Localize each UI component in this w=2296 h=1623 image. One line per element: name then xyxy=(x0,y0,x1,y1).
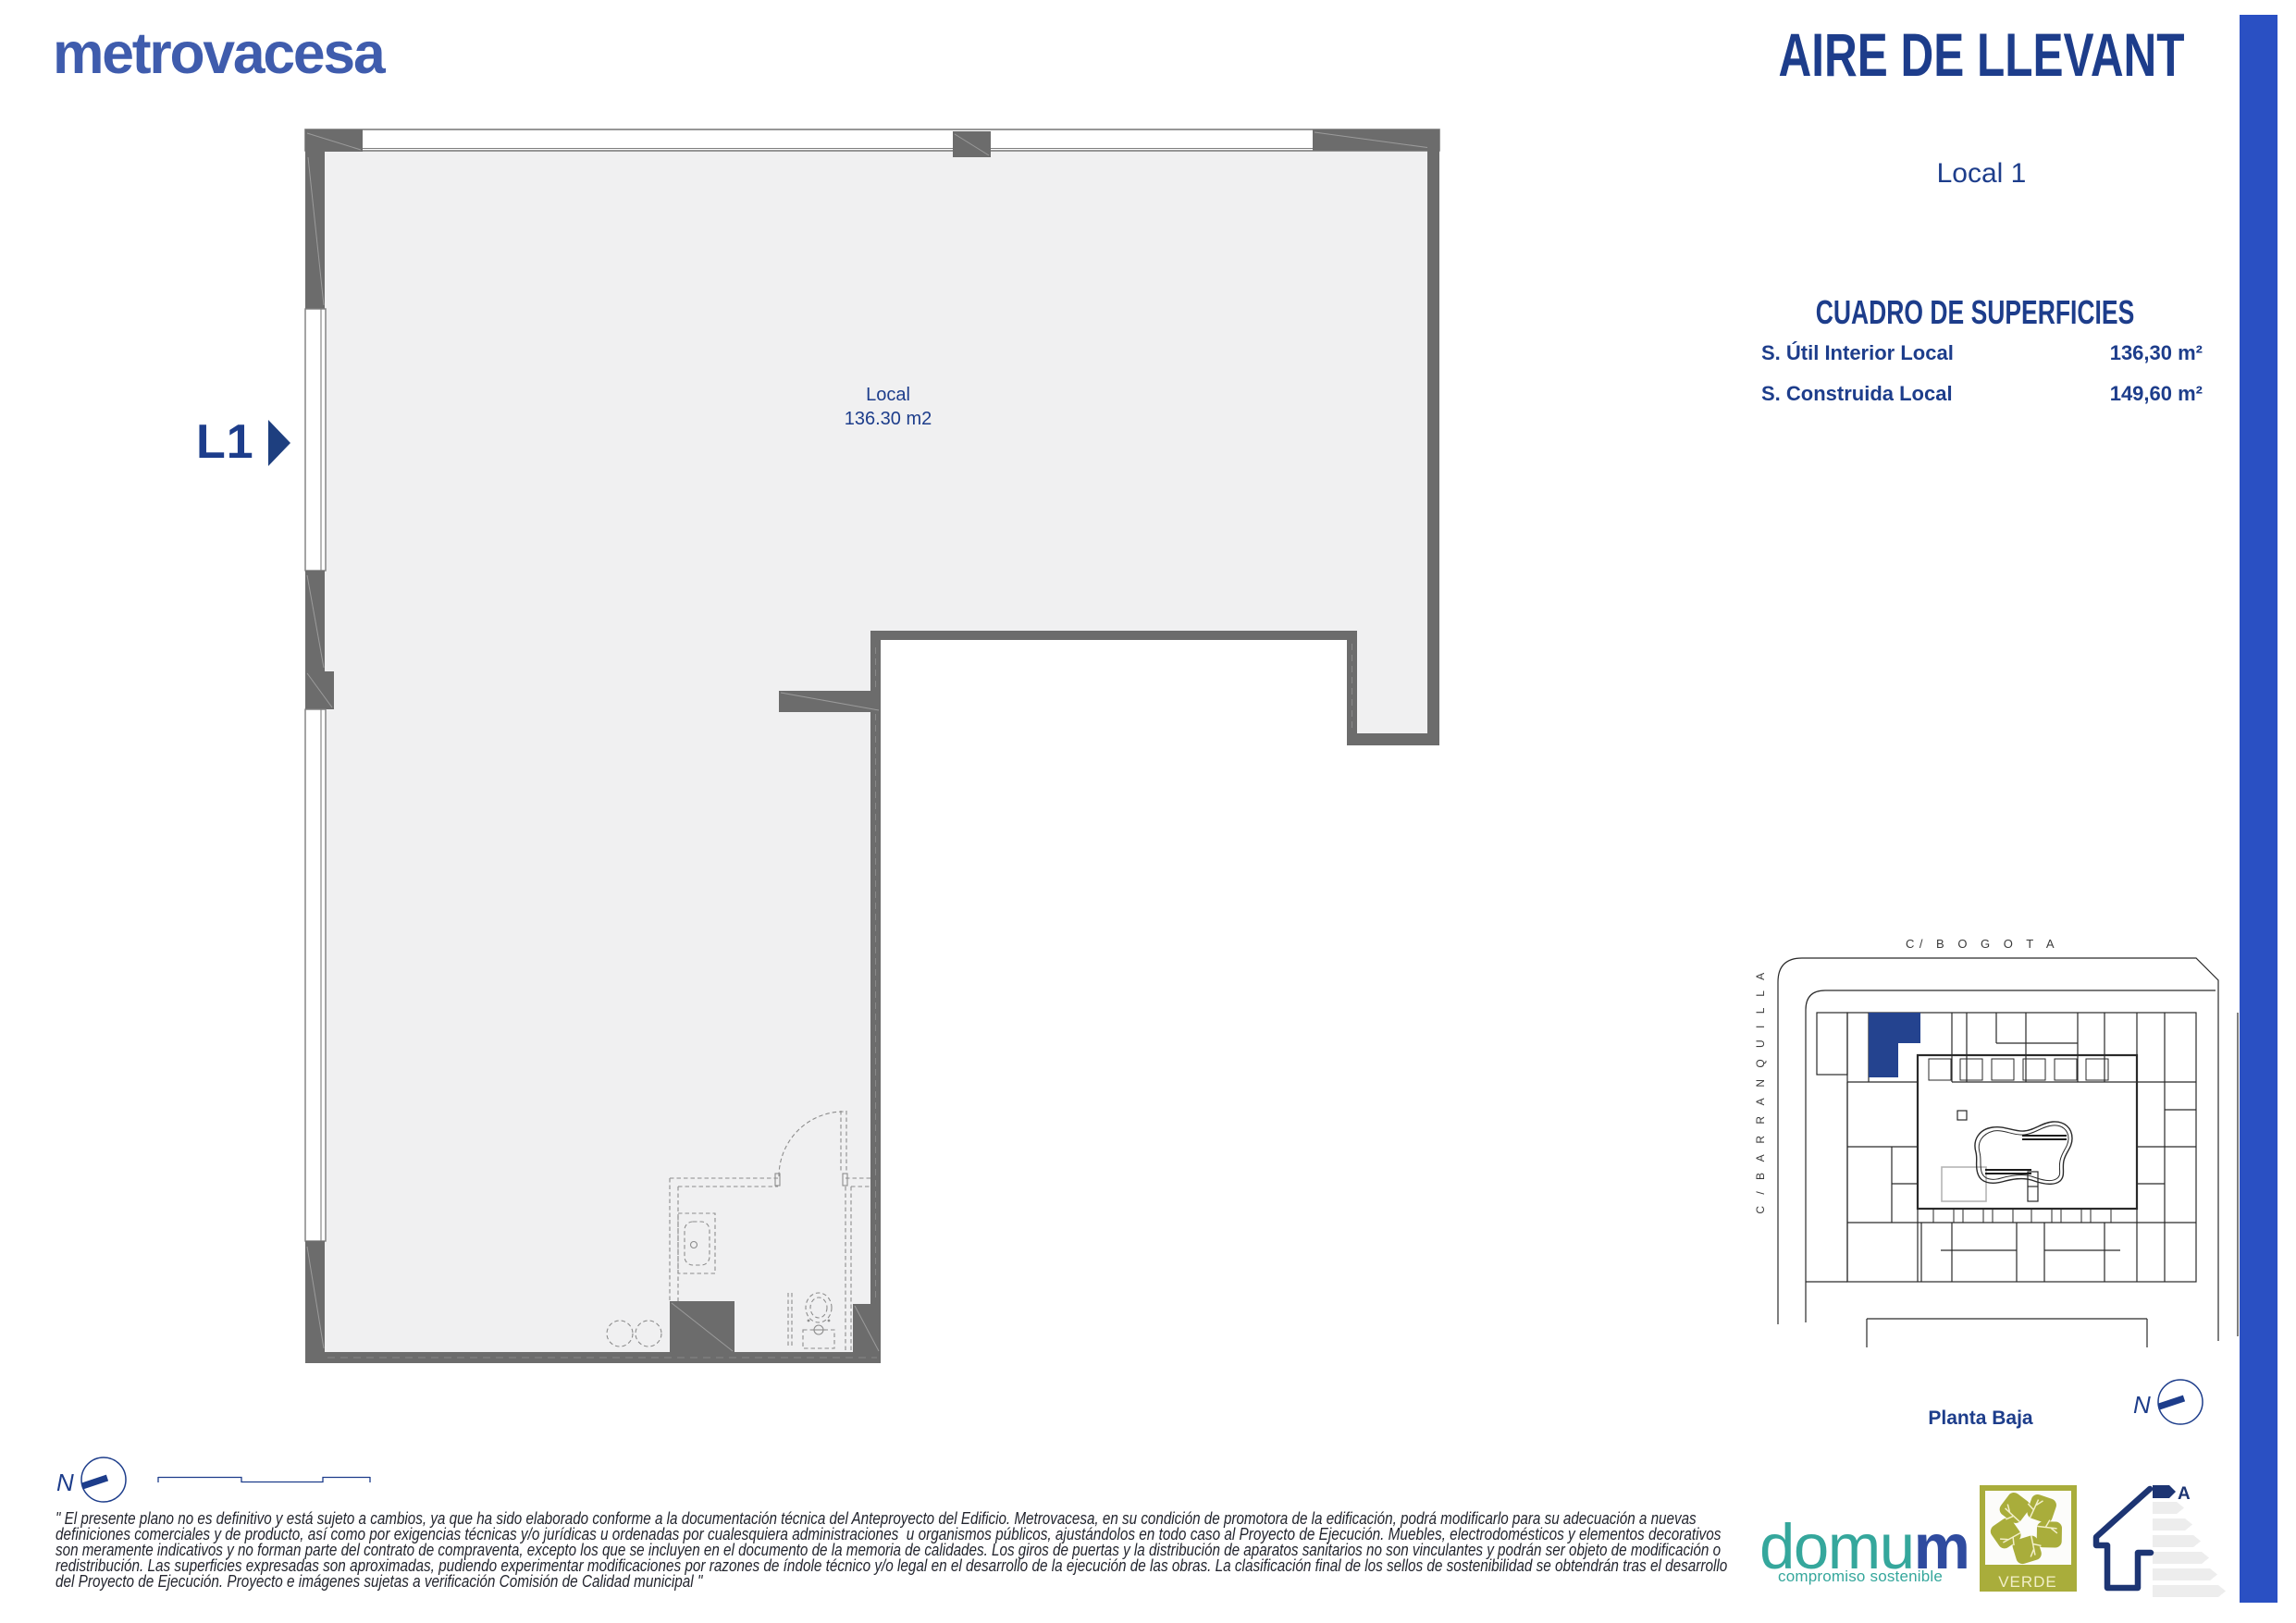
svg-text:A: A xyxy=(2178,1484,2191,1504)
svg-text:N: N xyxy=(56,1469,74,1496)
svg-text:VERDE: VERDE xyxy=(1998,1573,2057,1591)
svg-text:C / B A R R A N Q U I L L A: C / B A R R A N Q U I L L A xyxy=(1754,968,1767,1213)
svg-text:C/ B O G O T A: C/ B O G O T A xyxy=(1906,937,2059,951)
svg-text:N: N xyxy=(2133,1391,2151,1419)
